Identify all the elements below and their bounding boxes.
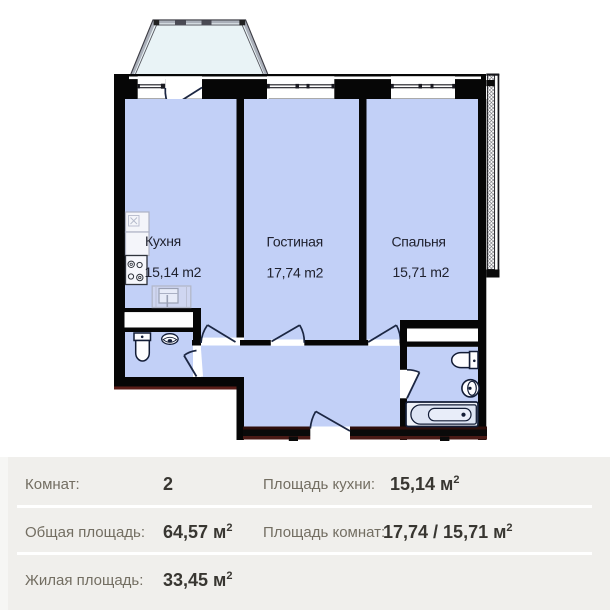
svg-text:Спальня: Спальня (392, 234, 446, 250)
svg-text:17,74 m2: 17,74 m2 (267, 265, 324, 281)
svg-text:Гостиная: Гостиная (267, 234, 323, 250)
svg-text:Кухня: Кухня (145, 233, 181, 249)
svg-text:15,71 m2: 15,71 m2 (393, 264, 450, 280)
svg-text:15,14 m2: 15,14 m2 (145, 264, 202, 280)
